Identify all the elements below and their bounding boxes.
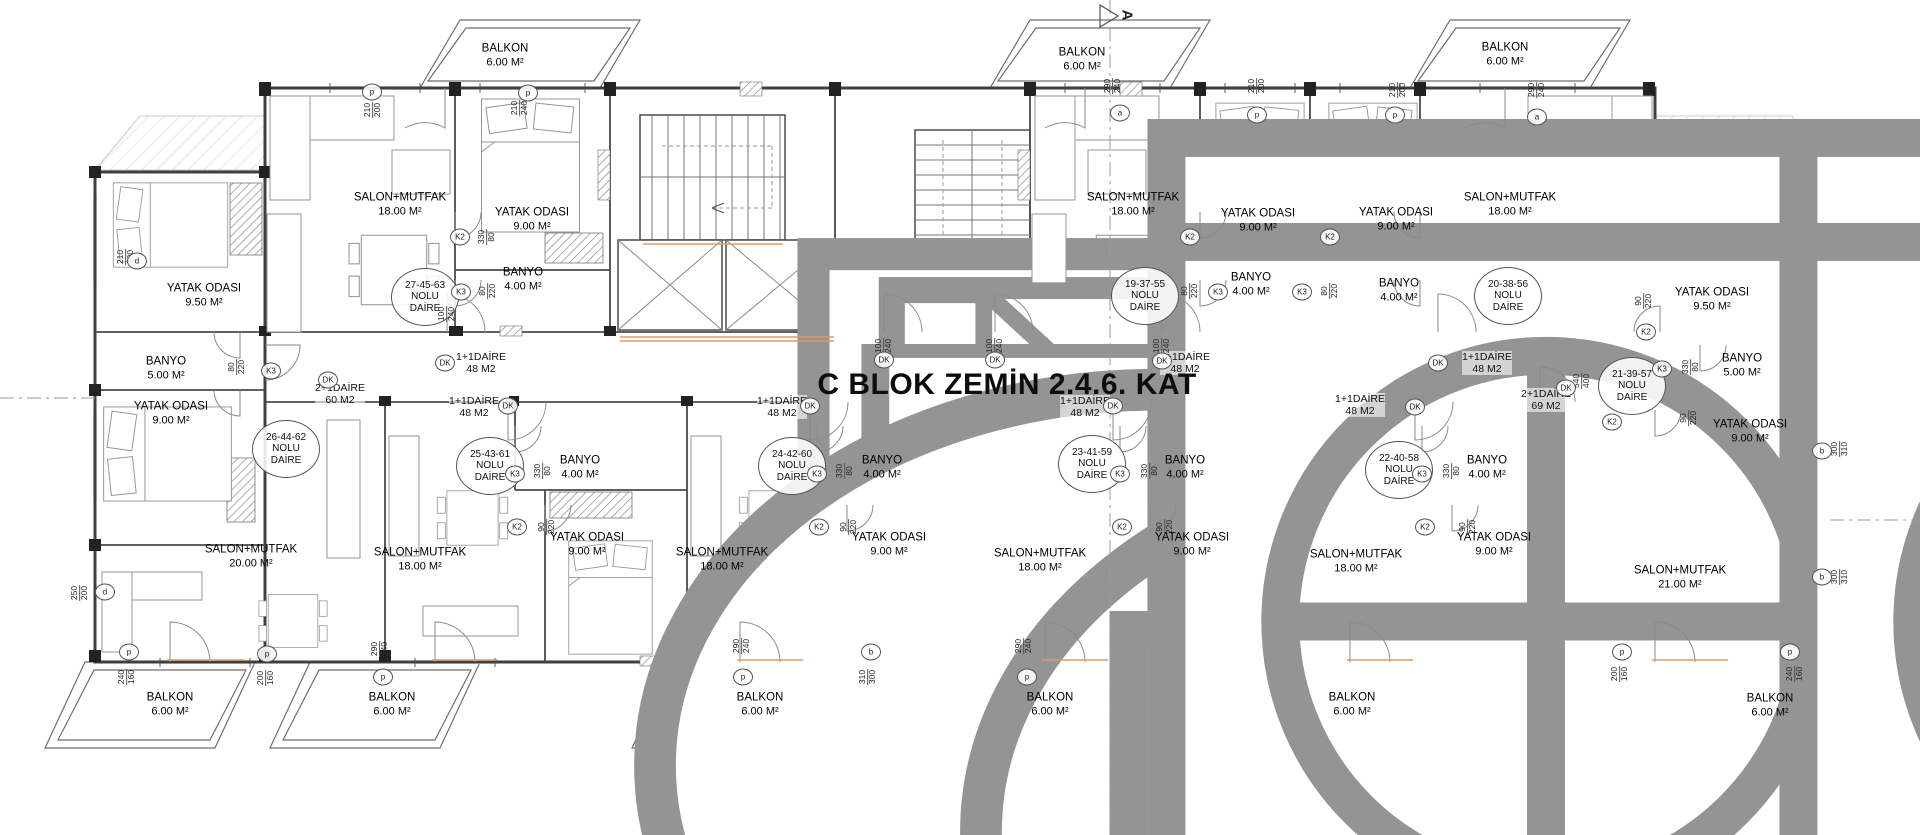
plan-title: C BLOK ZEMİN 2.4.6. KAT: [817, 368, 1196, 402]
floorplan-drawing: [0, 0, 1920, 835]
floor-plan: YATAK ODASI 9.50 M² BANYO 5.00 M² YATAK …: [0, 0, 1920, 835]
section-marker-triangle: [1100, 5, 1118, 27]
furniture: [102, 96, 1920, 835]
section-marker-label: A: [1119, 10, 1136, 21]
staircase-left: [640, 115, 785, 240]
